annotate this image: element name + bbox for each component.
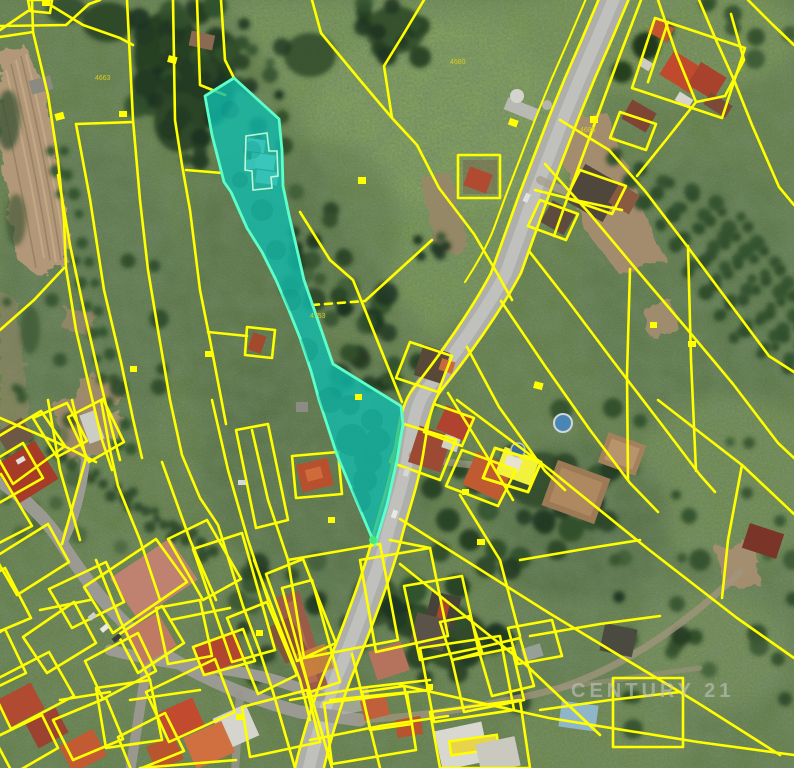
svg-text:CENTURY 21: CENTURY 21 [571,680,734,702]
svg-text:4663: 4663 [95,75,111,82]
svg-text:4680: 4680 [450,59,466,66]
svg-text:4685: 4685 [580,127,596,134]
svg-text:4753: 4753 [310,313,326,320]
